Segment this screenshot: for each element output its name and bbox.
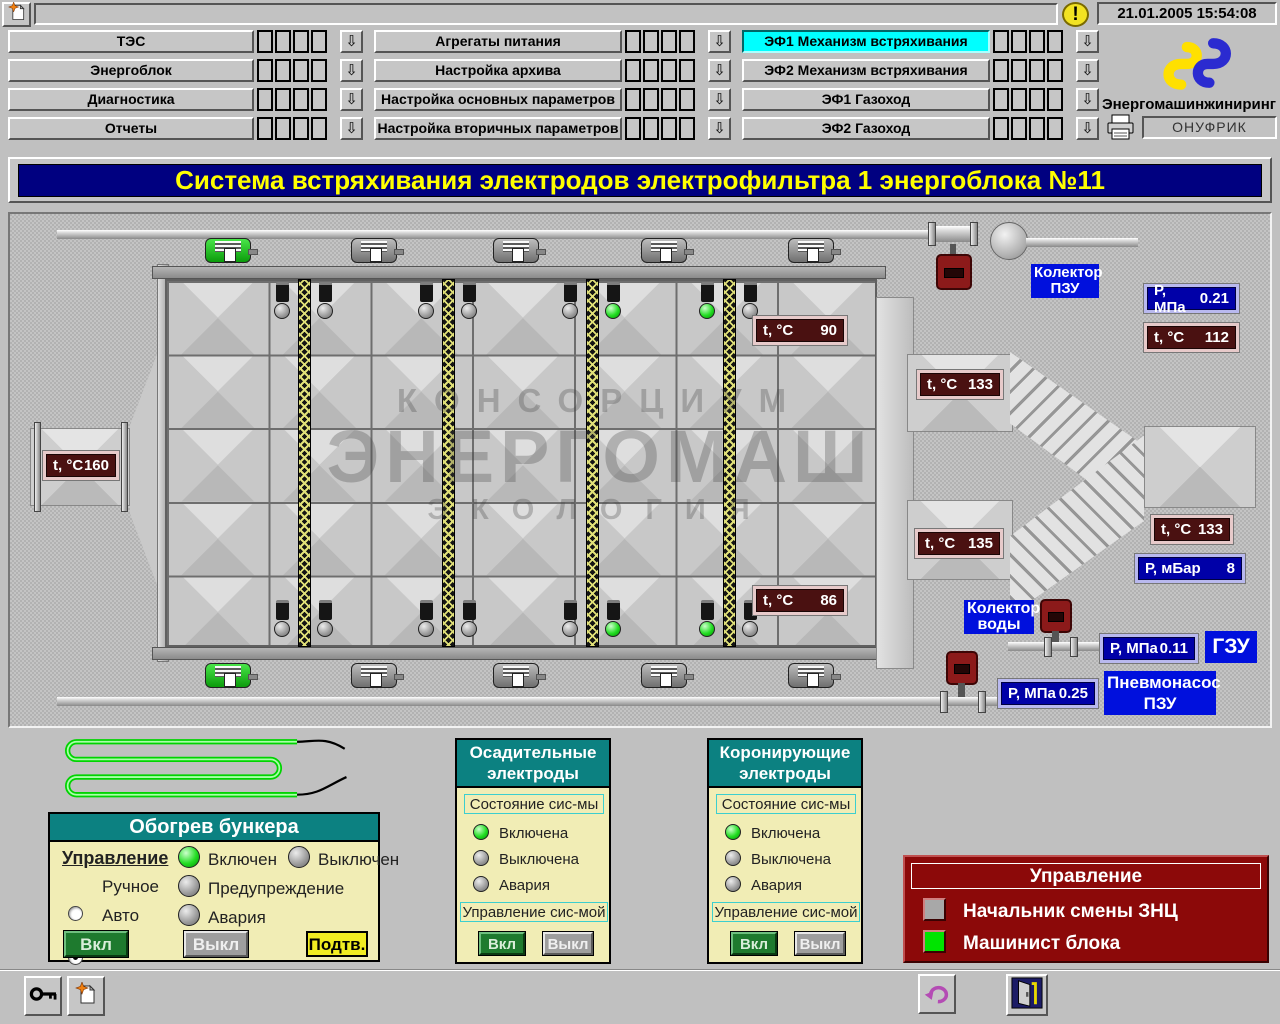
indicator-cells [257, 30, 327, 53]
dropdown-arrow-button[interactable] [340, 59, 363, 82]
lamp-off [725, 850, 741, 866]
readout-p-pneumopump: Р, МПа0.25 [997, 678, 1099, 709]
control-label: Управление сис-мой [460, 902, 608, 922]
vibrator-icon[interactable] [415, 600, 437, 634]
vibrator-icon[interactable] [271, 282, 293, 316]
exit-door-icon [1011, 977, 1043, 1014]
label-pneumopump-pzu: ПневмонасосПЗУ [1104, 671, 1216, 715]
panel-title: Управление [911, 863, 1261, 889]
indicator-cells [257, 117, 327, 140]
operator-indicator-on [923, 930, 946, 953]
electrode-column[interactable] [442, 279, 455, 647]
readout-t-collector-pzu: t, °C112 [1143, 322, 1240, 353]
status-bar [34, 3, 1058, 25]
vibrator-icon[interactable] [739, 282, 761, 316]
key-icon [28, 981, 58, 1012]
control-label: Управление сис-мой [712, 902, 860, 922]
valve-flange [1044, 637, 1052, 657]
label-collector-pzu: КолекторПЗУ [1031, 264, 1099, 298]
pump-icon[interactable] [990, 222, 1028, 260]
label-gzu: ГЗУ [1205, 631, 1257, 663]
pipe [1026, 238, 1138, 247]
scada-screen: ! 21.01.2005 15:54:08 ТЭС Энергоблок Диа… [0, 0, 1280, 1024]
lamp-off [288, 846, 310, 868]
filter-top-rail [152, 266, 886, 279]
on-button[interactable]: Вкл [64, 931, 128, 957]
lamp-alarm [178, 904, 200, 926]
printer-icon[interactable] [1106, 114, 1138, 142]
radio-manual[interactable] [68, 906, 83, 921]
motor-icon[interactable] [641, 238, 687, 263]
menu-button-diagnostika[interactable]: Диагностика [8, 88, 254, 111]
dropdown-arrow-button[interactable] [1076, 30, 1099, 53]
menu-button-vtorichnye-parametry[interactable]: Настройка вторичных параметров [374, 117, 622, 140]
electrode-column[interactable] [586, 279, 599, 647]
dropdown-arrow-button[interactable] [708, 117, 731, 140]
menu-button-ef2-gazohod[interactable]: ЭФ2 Газоход [742, 117, 990, 140]
dropdown-arrow-button[interactable] [340, 88, 363, 111]
stack-duct [1144, 426, 1256, 508]
vibrator-icon[interactable] [314, 600, 336, 634]
on-button[interactable]: Вкл [731, 932, 777, 955]
lamp-on [473, 824, 489, 840]
title-banner: Система встряхивания электродов электроф… [8, 157, 1272, 203]
off-button[interactable]: Выкл [184, 931, 248, 957]
menu-button-osnovnye-parametry[interactable]: Настройка основных параметров [374, 88, 622, 111]
sensor-stem [958, 683, 965, 697]
lamp-alarm [725, 876, 741, 892]
readout-t-field-top: t, °C90 [752, 315, 848, 346]
corona-electrodes-panel: Коронирующиеэлектроды Состояние сис-мы В… [707, 738, 863, 964]
menu-button-nastroyka-arhiva[interactable]: Настройка архива [374, 59, 622, 82]
control-label: Управление [62, 848, 168, 869]
valve-flange [978, 691, 986, 713]
vibrator-icon[interactable] [458, 600, 480, 634]
pipe [57, 697, 1007, 706]
status-label: Состояние сис-мы [464, 794, 604, 814]
panel-title: Осадительныеэлектроды [457, 740, 609, 788]
lamp-on-label: Включен [208, 850, 277, 870]
readout-t-outlet-bottom: t, °C135 [914, 528, 1004, 559]
document-spark-icon [7, 2, 27, 27]
readout-p-water: Р, МПа0.11 [1099, 633, 1199, 664]
dropdown-arrow-button[interactable] [1076, 88, 1099, 111]
operator-name-display: ОНУФРИК [1142, 116, 1277, 139]
toolbar-divider [0, 969, 1280, 971]
readout-t-inlet: t, °C160 [42, 450, 120, 481]
motor-icon[interactable] [493, 238, 539, 263]
vibrator-icon[interactable] [559, 282, 581, 316]
page-title: Система встряхивания электродов электроф… [18, 164, 1262, 197]
off-button[interactable]: Выкл [543, 932, 593, 955]
valve-flange [1070, 637, 1078, 657]
lamp-warning-label: Предупреждение [208, 879, 344, 899]
duct-flange [121, 422, 128, 512]
lamp-off-label: Выключена [499, 851, 579, 868]
menu-button-ef2-mehanizm[interactable]: ЭФ2 Механизм встряхивания [742, 59, 990, 82]
motor-icon[interactable] [788, 663, 834, 688]
indicator-cells [993, 59, 1063, 82]
lamp-warning [178, 875, 200, 897]
indicator-cells [625, 30, 695, 53]
valve-flange [940, 691, 948, 713]
menu-button-tes[interactable]: ТЭС [8, 30, 254, 53]
indicator-cells [625, 117, 695, 140]
vibrator-icon[interactable] [696, 600, 718, 634]
pressure-sensor-icon[interactable] [1040, 599, 1072, 633]
indicator-cells [993, 88, 1063, 111]
indicator-cells [625, 59, 695, 82]
bunker-heating-panel: Обогрев бункера Управление Включен Выклю… [48, 812, 380, 962]
valve-body[interactable] [936, 226, 970, 242]
readout-t-outlet-top: t, °C133 [916, 369, 1004, 400]
valve-flange [970, 222, 978, 246]
document-spark-icon [74, 982, 98, 1011]
readout-t-stack: t, °C133 [1150, 514, 1234, 545]
panel-title: Обогрев бункера [50, 814, 378, 842]
label-collector-water: Колекторводы [964, 600, 1034, 634]
operators-control-panel: Управление Начальник смены ЗНЦ Машинист … [903, 855, 1269, 963]
company-logo [1150, 32, 1250, 94]
readout-p-stack: Р, мБар8 [1134, 553, 1246, 584]
indicator-cells [625, 88, 695, 111]
panel-title: Коронирующиеэлектроды [709, 740, 861, 788]
company-name: Энергомашинжиниринг [1100, 96, 1278, 113]
vibrator-icon[interactable] [314, 282, 336, 316]
exit-button[interactable] [1006, 974, 1048, 1016]
undo-button[interactable] [918, 974, 956, 1014]
menu-button-ef1-gazohod[interactable]: ЭФ1 Газоход [742, 88, 990, 111]
operator-row-label: Начальник смены ЗНЦ [963, 901, 1178, 923]
radio-manual-label: Ручное [102, 877, 159, 897]
dropdown-arrow-button[interactable] [708, 88, 731, 111]
dropdown-arrow-button[interactable] [340, 117, 363, 140]
alarm-indicator-icon[interactable]: ! [1062, 2, 1089, 27]
pressure-sensor-icon[interactable] [946, 651, 978, 685]
electrode-column[interactable] [298, 279, 311, 647]
new-report-button[interactable] [2, 2, 31, 27]
lamp-on-label: Включена [499, 825, 568, 842]
indicator-cells [257, 88, 327, 111]
vibrator-icon[interactable] [415, 282, 437, 316]
vibrator-icon[interactable] [559, 600, 581, 634]
readout-t-field-bottom: t, °C86 [752, 585, 848, 616]
lamp-on [725, 824, 741, 840]
dropdown-arrow-button[interactable] [1076, 59, 1099, 82]
dropdown-arrow-button[interactable] [708, 59, 731, 82]
datetime-display: 21.01.2005 15:54:08 [1097, 2, 1277, 25]
lamp-on-label: Включена [751, 825, 820, 842]
status-label: Состояние сис-мы [716, 794, 856, 814]
indicator-cells [993, 30, 1063, 53]
lamp-on [178, 846, 200, 868]
vibrator-icon[interactable] [458, 282, 480, 316]
bunker-heater-coil [50, 730, 350, 810]
vibrator-icon[interactable] [602, 600, 624, 634]
confirm-button[interactable]: Подтв. [306, 931, 368, 957]
electrode-column[interactable] [723, 279, 736, 647]
lamp-off [473, 850, 489, 866]
precipitation-electrodes-panel: Осадительныеэлектроды Состояние сис-мы В… [455, 738, 611, 964]
undo-arrow-icon [923, 978, 951, 1011]
lamp-alarm [473, 876, 489, 892]
operator-row-label: Машинист блока [963, 933, 1120, 955]
duct-flange [34, 422, 41, 512]
dropdown-arrow-button[interactable] [708, 30, 731, 53]
readout-p-collector-pzu: Р, МПа0.21 [1143, 283, 1240, 314]
indicator-cells [993, 117, 1063, 140]
radio-auto-label: Авто [102, 906, 139, 926]
lamp-alarm-label: Авария [751, 877, 802, 894]
menu-button-ef1-mehanizm[interactable]: ЭФ1 Механизм встряхивания [742, 30, 990, 53]
lamp-alarm-label: Авария [499, 877, 550, 894]
key-login-button[interactable] [24, 976, 62, 1016]
lamp-off-label: Выключен [318, 850, 399, 870]
dropdown-arrow-button[interactable] [340, 30, 363, 53]
menu-button-energoblok[interactable]: Энергоблок [8, 59, 254, 82]
motor-icon[interactable] [493, 663, 539, 688]
motor-icon[interactable] [641, 663, 687, 688]
lamp-alarm-label: Авария [208, 908, 266, 928]
operator-indicator-off [923, 898, 946, 921]
lamp-off-label: Выключена [751, 851, 831, 868]
menu-button-agregaty-pitaniya[interactable]: Агрегаты питания [374, 30, 622, 53]
dropdown-arrow-button[interactable] [1076, 117, 1099, 140]
valve-flange [928, 222, 936, 246]
on-button[interactable]: Вкл [479, 932, 525, 955]
pipe [1008, 642, 1108, 651]
motor-icon[interactable] [788, 238, 834, 263]
indicator-cells [257, 59, 327, 82]
motor-icon[interactable] [205, 663, 251, 688]
pressure-sensor-icon[interactable] [936, 254, 972, 290]
new-report-button[interactable] [67, 976, 105, 1016]
off-button[interactable]: Выкл [795, 932, 845, 955]
motor-icon[interactable] [351, 663, 397, 688]
vibrator-icon[interactable] [602, 282, 624, 316]
motor-icon[interactable] [351, 238, 397, 263]
vibrator-icon[interactable] [696, 282, 718, 316]
outlet-support-column [876, 297, 914, 669]
menu-button-otchety[interactable]: Отчеты [8, 117, 254, 140]
vibrator-icon[interactable] [271, 600, 293, 634]
filter-bottom-rail [152, 647, 886, 660]
motor-icon[interactable] [205, 238, 251, 263]
mimic-diagram: КОНСОРЦИУМ ЭНЕРГОМАШ ЭКОЛОГИЯ t, °C90 t,… [8, 212, 1272, 728]
